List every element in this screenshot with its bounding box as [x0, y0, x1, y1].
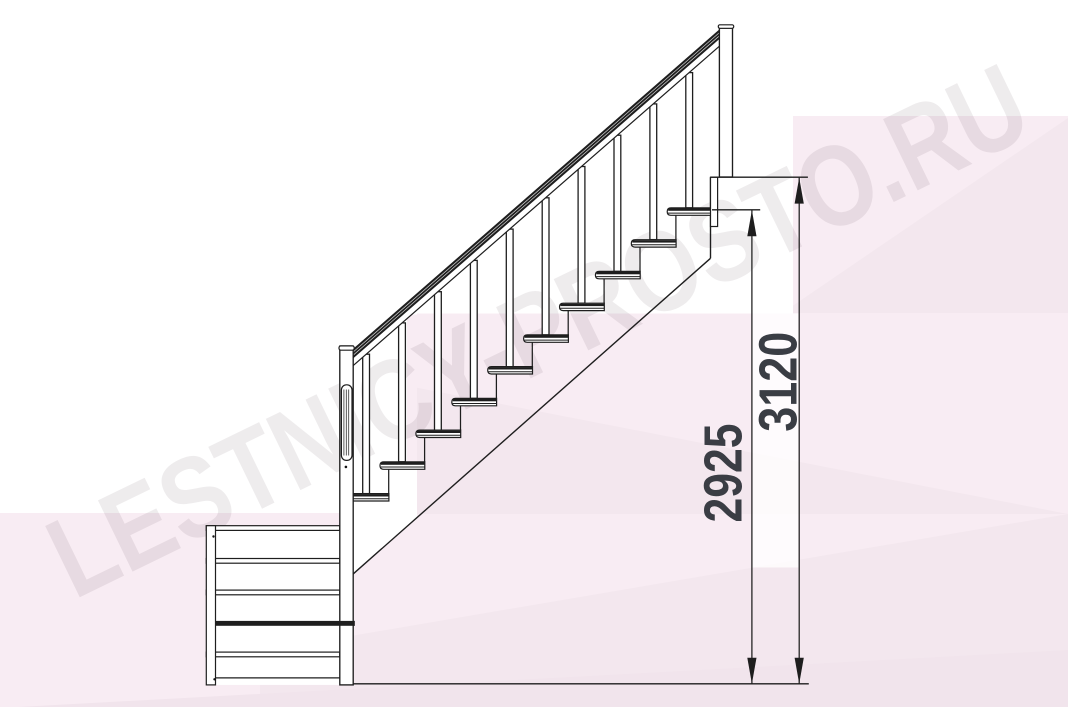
- svg-text:2925: 2925: [693, 424, 753, 523]
- svg-text:3120: 3120: [748, 332, 808, 432]
